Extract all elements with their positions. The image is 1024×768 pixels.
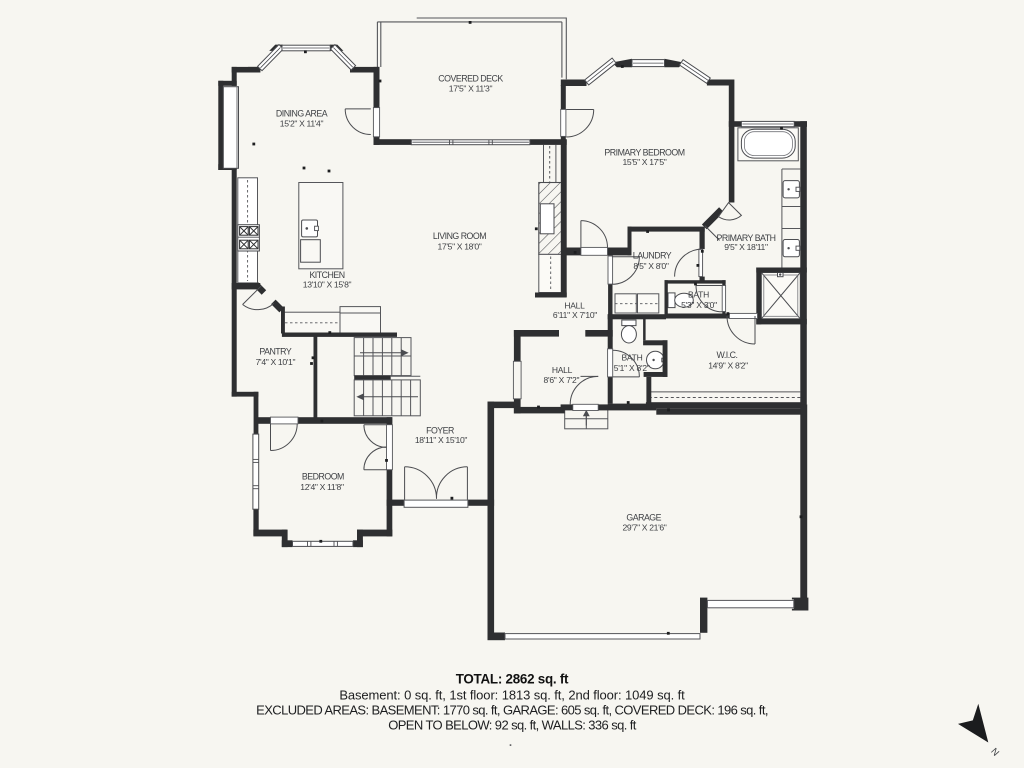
svg-text:17'5" X 11'3": 17'5" X 11'3" xyxy=(449,83,493,93)
svg-text:PRIMARY BEDROOM: PRIMARY BEDROOM xyxy=(604,147,684,157)
svg-text:LIVING ROOM: LIVING ROOM xyxy=(433,231,486,241)
svg-text:9'5" X 18'11": 9'5" X 18'11" xyxy=(724,242,768,252)
svg-text:6'11" X 7'10": 6'11" X 7'10" xyxy=(553,310,597,320)
svg-text:13'10" X 15'8": 13'10" X 15'8" xyxy=(303,279,352,289)
svg-text:BATH: BATH xyxy=(621,353,642,363)
svg-text:BATH: BATH xyxy=(688,290,709,300)
svg-text:DINING AREA: DINING AREA xyxy=(276,108,328,118)
svg-text:GARAGE: GARAGE xyxy=(626,513,661,523)
svg-text:COVERED DECK: COVERED DECK xyxy=(438,73,503,83)
svg-text:8'6" X 7'2": 8'6" X 7'2" xyxy=(543,375,579,385)
svg-text:15'2" X 11'4": 15'2" X 11'4" xyxy=(280,118,324,128)
svg-text:PANTRY: PANTRY xyxy=(259,347,292,357)
svg-text:8'5" X 8'0": 8'5" X 8'0" xyxy=(633,261,668,271)
svg-text:EXCLUDED AREAS: BASEMENT: 1770: EXCLUDED AREAS: BASEMENT: 1770 sq. ft, G… xyxy=(256,703,768,718)
svg-text:OPEN TO BELOW: 92 sq. ft, WALL: OPEN TO BELOW: 92 sq. ft, WALLS: 336 sq.… xyxy=(388,718,637,733)
svg-text:LAUNDRY: LAUNDRY xyxy=(633,251,672,261)
svg-text:W.I.C.: W.I.C. xyxy=(717,350,738,360)
svg-text:7'4" X 10'1": 7'4" X 10'1" xyxy=(256,357,296,367)
svg-text:TOTAL: 2862 sq. ft: TOTAL: 2862 sq. ft xyxy=(456,672,569,687)
svg-text:12'4" X 11'8": 12'4" X 11'8" xyxy=(300,482,344,492)
svg-text:5'1" X 8'2": 5'1" X 8'2" xyxy=(614,363,650,373)
svg-text:5'3" X 3'0": 5'3" X 3'0" xyxy=(681,300,717,310)
svg-text:HALL: HALL xyxy=(552,365,573,375)
svg-text:17'5" X 18'0": 17'5" X 18'0" xyxy=(437,242,481,252)
svg-text:14'9" X 8'2": 14'9" X 8'2" xyxy=(708,360,748,370)
svg-text:BEDROOM: BEDROOM xyxy=(302,472,344,482)
svg-text:29'7" X 21'6": 29'7" X 21'6" xyxy=(622,522,666,532)
svg-text:Basement: 0 sq. ft, 1st floor:: Basement: 0 sq. ft, 1st floor: 1813 sq. … xyxy=(339,688,685,703)
svg-text:15'5" X 17'5": 15'5" X 17'5" xyxy=(622,157,666,167)
svg-text:18'11" X 15'10": 18'11" X 15'10" xyxy=(415,435,468,445)
